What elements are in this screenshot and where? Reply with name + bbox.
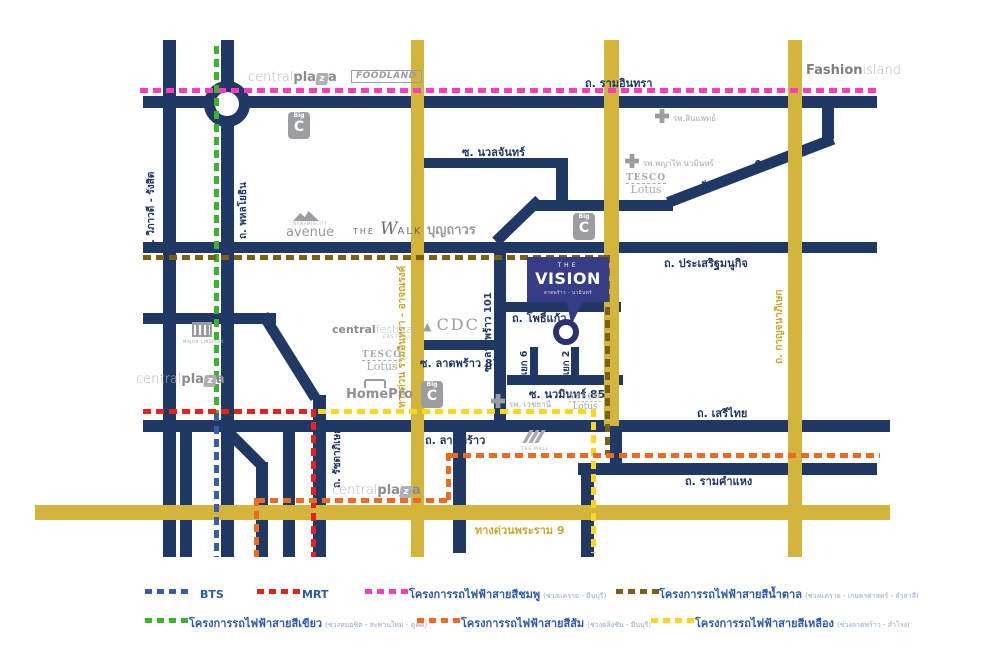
- the-vision-logo-box: THE VISION ลาดพร้าว - นวมินทร์: [527, 257, 609, 302]
- big-c-icon-top: BigC: [288, 112, 310, 139]
- major-cineplex-caption: MAJOR CINEPLEX: [183, 340, 224, 344]
- road-kanchanaphisek: [788, 40, 802, 557]
- legend-swatch-mrt: [257, 589, 303, 594]
- orange-line-vertical-mid: [446, 453, 451, 502]
- major-cineplex-columns: [194, 325, 210, 335]
- centralplaza-z-icon: z: [399, 486, 413, 498]
- legend-swatch-green-line: [145, 618, 191, 623]
- orange-line-horizontal-east: [450, 453, 880, 458]
- yellow-line-horizontal: [318, 409, 594, 414]
- road-kaset-nawamin: [143, 242, 877, 253]
- hospital-label-sinphaet: รพ.สินแพทย์: [673, 112, 716, 125]
- map-canvas: ถ. รามอินทรา ถ. วิภาวดี - รังสิต ถ. พหลโ…: [0, 0, 1000, 650]
- cdc-logo: ▲ CDC: [423, 317, 480, 334]
- the-mall-slashes-icon: [526, 428, 544, 447]
- legend-item-bts: BTS: [200, 583, 227, 602]
- road-vertical-455: [453, 432, 466, 553]
- road-ram-inthra: [143, 96, 877, 108]
- centralplaza-logo-bottom: centralplaza: [332, 481, 421, 498]
- road-ratchada-north-diagonal: [259, 312, 320, 401]
- homepro-logo: HomePro: [346, 388, 413, 402]
- big-c-icon-mid: BigC: [573, 213, 595, 240]
- legend-item-brown-line: โครงการรถไฟฟ้าสายสีน้ำตาล(ช่วงแคราย - เก…: [659, 583, 919, 603]
- road-label-ramkhamhaeng: ถ. รามคำแหง: [685, 472, 752, 490]
- legend-swatch-yellow-line: [651, 618, 697, 623]
- road-ladprao-serithai: [143, 420, 890, 432]
- cdc-triangle-icon: ▲: [423, 320, 431, 333]
- hospital-cross-icon-sinphaet: [655, 109, 669, 123]
- centralplaza-z-icon: z: [315, 73, 329, 85]
- road-label-rama9-expressway: ทางด่วนพระราม 9: [475, 521, 565, 539]
- legend-swatch-brown-line: [616, 589, 662, 594]
- legend-item-yellow-line: โครงการรถไฟฟ้าสายสีเหลือง(ช่วงลาดพร้าว -…: [695, 612, 910, 632]
- road-label-phahonyothin: ถ. พหลโยธิน: [236, 167, 251, 239]
- major-cineplex-icon: [192, 322, 212, 337]
- road-vertical-183: [180, 426, 192, 557]
- centralplaza-z-icon: z: [203, 375, 217, 387]
- road-vertical-285: [283, 426, 295, 557]
- big-c-icon-ladprao: BigC: [421, 381, 443, 408]
- road-vibhavadi: [163, 40, 176, 557]
- boonthavorn-logo: บุญถาวร: [427, 224, 476, 238]
- hospital-label-phyathai: รพ.พญาไท นวมินทร์: [643, 157, 714, 170]
- tesco-lotus-logo-eastville: TESCOLotus: [362, 350, 402, 373]
- road-label-yaek6: แยก 6: [517, 346, 532, 378]
- road-label-seri-thai: ถ. เสรีไทย: [697, 404, 747, 422]
- road-kaset-link-diagonal: [492, 196, 543, 246]
- nawamin-city-mountain-icon: [293, 211, 319, 221]
- nawamin-city-avenue-logo: NAWAMINCITY avenue: [286, 222, 334, 240]
- central-festival-logo: centralfestival EASTVILLE: [332, 324, 416, 340]
- road-label-ratchadaphisek: ถ. รัชดาภิเษก: [330, 424, 345, 488]
- road-nawamin-south-upper: [610, 432, 622, 470]
- hospital-cross-icon-phyathai: [625, 154, 639, 168]
- legend-swatch-pink-line: [365, 589, 411, 594]
- road-label-kanchanaphisek: ถ. กาญจนาภิเษก: [772, 282, 787, 364]
- orange-line-horizontal-west: [257, 498, 449, 503]
- road-label-yaek2: แยก 2: [559, 346, 574, 378]
- centralplaza-logo-mid: centralplaza: [136, 370, 225, 387]
- tesco-lotus-logo-nawamin: TESCOLotus: [569, 393, 601, 411]
- fashion-island-logo: Fashionisland: [806, 64, 901, 78]
- road-right-stub: [822, 103, 834, 139]
- legend-swatch-bts: [145, 589, 191, 594]
- road-label-ladprao: ถ. ลาดพร้าว: [425, 431, 485, 449]
- bts-line: [214, 413, 219, 557]
- mrt-line-horizontal: [143, 409, 313, 414]
- road-nuanchan-connector: [556, 162, 568, 210]
- legend-item-green-line: โครงการรถไฟฟ้าสายสีเขียว(ช่วงหมอชิต - สะ…: [189, 612, 427, 632]
- road-rama9-expressway: [35, 505, 890, 520]
- tesco-lotus-logo-north: TESCOLotus: [626, 173, 666, 196]
- orange-line-vertical-west: [254, 498, 259, 557]
- legend-item-pink-line: โครงการรถไฟฟ้าสายสีชมพู(ช่วงแคราย - มีนบ…: [409, 583, 606, 603]
- road-label-vibhavadi: ถ. วิภาวดี - รังสิต: [144, 165, 159, 249]
- road-label-prasert-manukit: ถ. ประเสริฐมนูกิจ: [664, 254, 748, 272]
- road-label-nuanchan: ซ. นวลจันทร์: [462, 143, 525, 161]
- centralplaza-logo-top: centralplaza: [248, 68, 337, 85]
- pink-line: [140, 88, 878, 93]
- legend-item-orange-line: โครงการรถไฟฟ้าสายสีส้ม(ช่วงตลิ่งชัน - มี…: [461, 612, 651, 632]
- green-line: [214, 46, 219, 413]
- hospital-label-vejthani: รพ. เวชธานี: [509, 398, 551, 411]
- mrt-line-vertical: [311, 409, 316, 557]
- legend-swatch-orange-line: [417, 618, 463, 623]
- foodland-logo: FOODLAND: [351, 70, 422, 83]
- the-walk-logo: THE WALK: [353, 221, 423, 239]
- road-label-ladprao87: ซ. ลาดพร้าว 87: [420, 354, 500, 372]
- legend-item-mrt: MRT: [302, 583, 331, 602]
- road-label-ratchada-ramindra: ถ. รัชดา - รามอินทรา: [685, 145, 791, 200]
- yellow-line-vertical: [591, 409, 596, 553]
- road-label-ram-inthra: ถ. รามอินทรา: [585, 74, 652, 92]
- road-ramindra-expressway: [411, 40, 424, 557]
- the-vision-location-pin: [553, 319, 579, 345]
- the-mall-logo: THE MALL: [521, 430, 549, 451]
